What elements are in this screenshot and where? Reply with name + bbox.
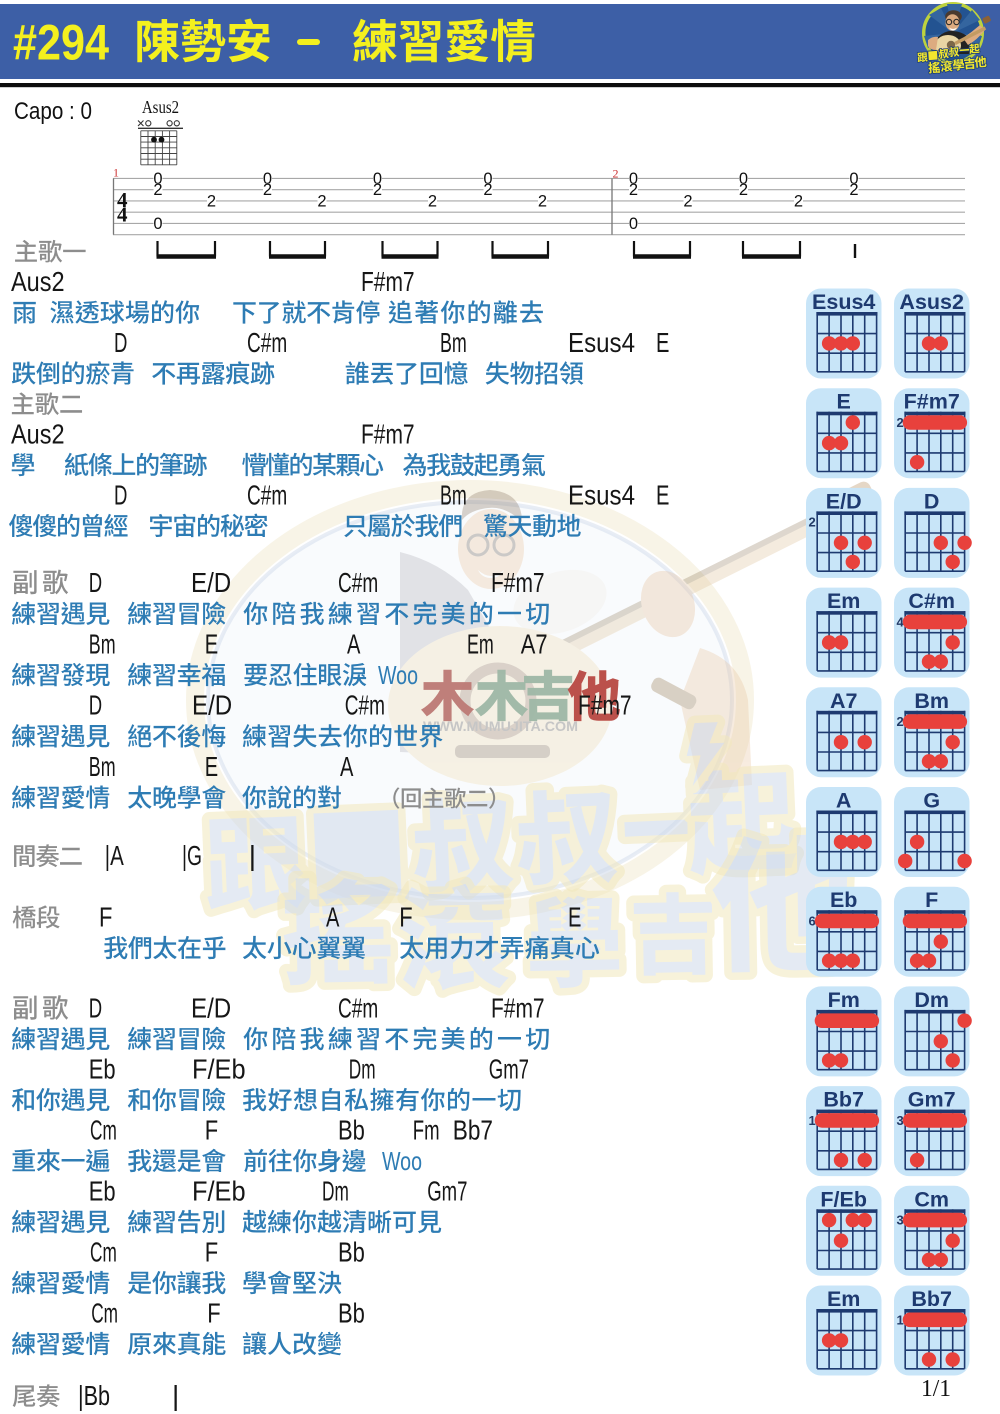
svg-text:D: D	[89, 993, 102, 1024]
svg-text:E/D: E/D	[192, 690, 232, 721]
svg-text:2: 2	[153, 181, 162, 199]
svg-text:E/D: E/D	[191, 567, 231, 598]
svg-text:Esus4: Esus4	[812, 290, 875, 314]
svg-text:2: 2	[317, 193, 326, 211]
svg-text:1: 1	[809, 1113, 816, 1128]
svg-text:Woo: Woo	[378, 660, 418, 690]
svg-text:C#m: C#m	[338, 993, 378, 1024]
svg-text:|G: |G	[182, 840, 202, 871]
svg-text:Dm: Dm	[914, 988, 949, 1012]
svg-text:E/D: E/D	[191, 993, 231, 1024]
svg-text:Asus2: Asus2	[142, 97, 179, 117]
svg-text:Bb7: Bb7	[823, 1088, 864, 1112]
svg-text:F: F	[399, 901, 412, 932]
svg-text:Bm: Bm	[440, 327, 467, 358]
svg-text:F/Eb: F/Eb	[192, 1176, 246, 1207]
svg-text:Dm: Dm	[349, 1054, 376, 1085]
svg-text:Capo : 0: Capo : 0	[14, 98, 92, 125]
svg-text:Dm: Dm	[322, 1176, 349, 1207]
svg-text:2: 2	[897, 714, 904, 729]
svg-text:2: 2	[483, 181, 492, 199]
svg-text:Bm: Bm	[89, 751, 116, 782]
svg-text:1: 1	[897, 1312, 904, 1327]
svg-text:F#m7: F#m7	[361, 419, 415, 450]
svg-text:Bm: Bm	[89, 628, 116, 659]
svg-text:C#m: C#m	[338, 567, 378, 598]
svg-text:6: 6	[809, 914, 816, 929]
svg-text:F#m7: F#m7	[578, 690, 632, 721]
svg-text:D: D	[114, 480, 127, 511]
svg-text:E: E	[205, 628, 218, 659]
svg-text:|A: |A	[105, 840, 124, 871]
svg-text:E: E	[656, 327, 669, 358]
svg-text:2: 2	[809, 515, 816, 530]
svg-text:2: 2	[613, 167, 619, 181]
svg-text:E: E	[205, 751, 218, 782]
svg-text:A: A	[340, 751, 354, 782]
svg-text:Em: Em	[467, 628, 494, 659]
svg-text:2: 2	[683, 193, 692, 211]
svg-text:Em: Em	[827, 1287, 860, 1311]
svg-text:D: D	[114, 327, 127, 358]
svg-text:F: F	[207, 1298, 220, 1329]
svg-text:Woo: Woo	[382, 1146, 422, 1176]
svg-text:F#m7: F#m7	[491, 567, 545, 598]
svg-text:Esus4: Esus4	[568, 327, 635, 358]
svg-text:2: 2	[207, 193, 216, 211]
svg-text:Eb: Eb	[830, 888, 857, 912]
svg-text:Em: Em	[827, 589, 860, 613]
svg-text:F/Eb: F/Eb	[820, 1187, 867, 1211]
svg-text:Cm: Cm	[91, 1298, 118, 1329]
svg-text:3: 3	[897, 1113, 904, 1128]
svg-text:E/D: E/D	[826, 489, 862, 513]
svg-text:Esus4: Esus4	[568, 480, 635, 511]
svg-text:Eb: Eb	[89, 1054, 116, 1085]
svg-text:Bb: Bb	[338, 1298, 365, 1329]
svg-text:C#m: C#m	[247, 480, 287, 511]
svg-text:F/Eb: F/Eb	[192, 1054, 246, 1085]
svg-text:|Bb: |Bb	[78, 1380, 110, 1411]
svg-text:C#m: C#m	[908, 589, 955, 613]
svg-text:D: D	[924, 489, 940, 513]
svg-text:Gm7: Gm7	[427, 1176, 467, 1207]
svg-text:2: 2	[897, 415, 904, 430]
svg-text:2: 2	[739, 181, 748, 199]
svg-text:Fm: Fm	[828, 988, 860, 1012]
svg-text:Eb: Eb	[89, 1176, 116, 1207]
svg-text:E: E	[656, 480, 669, 511]
svg-text:2: 2	[428, 193, 437, 211]
svg-text:D: D	[89, 567, 102, 598]
svg-text:Asus2: Asus2	[899, 290, 964, 314]
svg-text:Bm: Bm	[440, 480, 467, 511]
svg-text:3: 3	[897, 1213, 904, 1228]
svg-text:Bb7: Bb7	[911, 1287, 952, 1311]
svg-text:Bb: Bb	[338, 1237, 365, 1268]
svg-text:WWW.MUMUJITA.COM: WWW.MUMUJITA.COM	[423, 719, 578, 734]
svg-text:D: D	[89, 690, 102, 721]
svg-text:2: 2	[629, 181, 638, 199]
svg-text:C#m: C#m	[345, 690, 385, 721]
svg-text:Gm7: Gm7	[489, 1054, 529, 1085]
svg-text:F#m7: F#m7	[361, 266, 415, 297]
svg-text:2: 2	[794, 193, 803, 211]
svg-text:F: F	[205, 1237, 218, 1268]
svg-text:A7: A7	[521, 628, 548, 659]
svg-text:4: 4	[117, 202, 128, 226]
svg-text:F: F	[99, 901, 112, 932]
svg-text:Cm: Cm	[914, 1187, 949, 1211]
svg-text:A7: A7	[830, 689, 858, 713]
svg-text:1: 1	[113, 166, 119, 180]
svg-text:F#m7: F#m7	[904, 390, 960, 414]
svg-text:F: F	[925, 888, 938, 912]
svg-text:|: |	[249, 840, 256, 871]
svg-text:E: E	[837, 390, 851, 414]
svg-text:A: A	[347, 628, 361, 659]
svg-text:A: A	[836, 789, 852, 813]
svg-text:2: 2	[373, 181, 382, 199]
svg-text:E: E	[568, 901, 581, 932]
svg-text:2: 2	[538, 193, 547, 211]
svg-text:Bm: Bm	[914, 689, 949, 713]
svg-text:C#m: C#m	[247, 327, 287, 358]
svg-text:Aus2: Aus2	[11, 419, 65, 450]
svg-text:Fm: Fm	[413, 1115, 440, 1146]
svg-text:Cm: Cm	[90, 1237, 117, 1268]
svg-text:2: 2	[849, 181, 858, 199]
svg-text:F: F	[205, 1115, 218, 1146]
svg-text:Gm7: Gm7	[908, 1088, 956, 1112]
svg-text:1/1: 1/1	[921, 1376, 951, 1402]
svg-text:Bb7: Bb7	[453, 1115, 493, 1146]
svg-text:0: 0	[153, 215, 162, 233]
svg-text:Bb: Bb	[338, 1115, 365, 1146]
svg-text:F#m7: F#m7	[491, 993, 545, 1024]
svg-text:A: A	[326, 901, 340, 932]
svg-text:#294: #294	[13, 15, 109, 71]
svg-text:G: G	[923, 789, 940, 813]
svg-text:|: |	[172, 1380, 179, 1411]
svg-text:Cm: Cm	[90, 1115, 117, 1146]
svg-text:2: 2	[263, 181, 272, 199]
svg-text:0: 0	[629, 215, 638, 233]
svg-text:Aus2: Aus2	[11, 266, 65, 297]
